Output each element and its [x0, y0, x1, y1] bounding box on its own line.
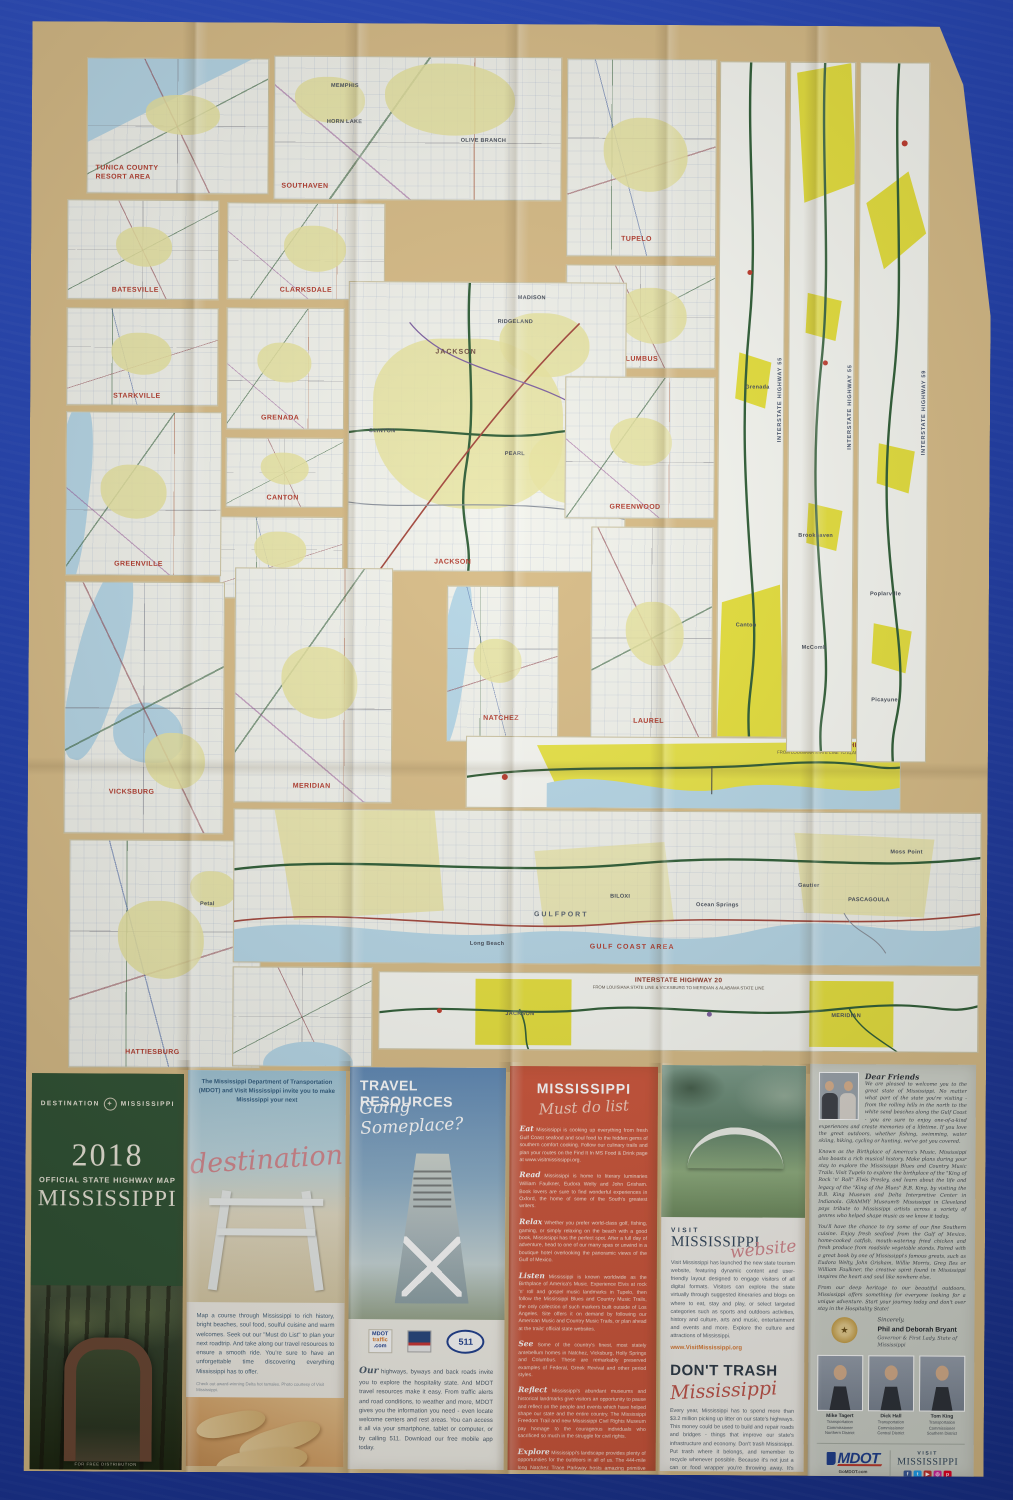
dont-trash-body: Every year, Mississippi has to spend mor… — [660, 1401, 804, 1472]
commissioner-photo — [919, 1356, 965, 1412]
inset-label: VICKSBURG — [109, 789, 155, 798]
travel-body: Our highways, byways and back roads invi… — [348, 1357, 505, 1462]
mississippi-shape-icon — [827, 1452, 836, 1465]
inset-label: CANTON — [266, 495, 298, 504]
inset-natchez: NATCHEZ — [446, 586, 559, 743]
beach-photo: The Mississippi Department of Transporta… — [187, 1070, 346, 1303]
mdottraffic-logo: MDOT traffic .com — [368, 1329, 392, 1352]
inset-label: SOUTHAVEN — [281, 183, 328, 192]
inset-label: CLARKSDALE — [280, 287, 332, 296]
inset-label: NATCHEZ — [483, 715, 519, 724]
inset-label: GREENWOOD — [609, 504, 660, 513]
map-side: TUNICA COUNTY RESORT AREA MEMPHIS HORN L… — [26, 21, 992, 1075]
strip-vertical-label: INTERSTATE HIGHWAY 55 — [847, 364, 854, 449]
gomdot-url: GoMDOT.com — [821, 1469, 886, 1474]
inset-label: GREENVILLE — [114, 561, 163, 570]
inset-grenada: GRENADA — [226, 307, 345, 430]
inset-label: TUPELO — [621, 236, 652, 245]
cover-footnote: FOR FREE DISTRIBUTION — [30, 1461, 182, 1467]
body-lead-word: Our — [359, 1366, 378, 1376]
511-logo: 511 — [447, 1330, 485, 1354]
inset-label: LAUREL — [633, 718, 664, 727]
must-do-item: Listen Mississippi is known worldwide as… — [518, 1271, 646, 1334]
tamales-photo — [186, 1397, 344, 1467]
must-do-item: Read Mississippi is home to literary lum… — [519, 1170, 647, 1211]
inset-label: JACKSON — [434, 559, 471, 568]
highway-map-sheet: TUNICA COUNTY RESORT AREA MEMPHIS HORN L… — [24, 21, 993, 1477]
website-body: Visit Mississippi has launched the new s… — [660, 1253, 805, 1343]
inset-southaven: MEMPHIS HORN LAKE OLIVE BRANCH SOUTHAVEN — [273, 56, 562, 202]
inset-gulf-coast: GULFPORT BILOXI Ocean Springs Gautier PA… — [233, 808, 982, 967]
mdot-app-icon — [407, 1330, 431, 1352]
inset-greenwood: GREENWOOD — [564, 376, 715, 519]
must-do-title: MISSISSIPPI — [520, 1080, 648, 1097]
tamales-caption: Check out award-winning Delta hot tamale… — [186, 1381, 344, 1394]
compass-icon: ✦ — [104, 1098, 117, 1111]
pinterest-icon: p — [944, 1471, 952, 1477]
commissioner-photo — [868, 1356, 914, 1412]
inset-tunica: TUNICA COUNTY RESORT AREA — [86, 57, 269, 194]
destination-intro: The Mississippi Department of Transporta… — [196, 1078, 338, 1106]
inset-label: GRENADA — [261, 414, 299, 423]
destination-script: destination — [187, 1140, 346, 1181]
must-do-item: Reflect Mississippi's abundant museums a… — [518, 1385, 646, 1441]
photo-scene: TUNICA COUNTY RESORT AREA MEMPHIS HORN L… — [0, 0, 1013, 1500]
inset-label: TUNICA COUNTY RESORT AREA — [95, 164, 173, 182]
inset-greenville: GREENVILLE — [65, 411, 222, 576]
strip-vertical-label: INTERSTATE HIGHWAY 55 — [777, 357, 784, 442]
visit-mississippi-logo: MISSISSIPPI — [895, 1457, 961, 1468]
visit-mississippi-url: www.VisitMississippi.org — [660, 1342, 804, 1355]
must-do-script: Must do list — [519, 1096, 648, 1120]
panel-must-do: MISSISSIPPI Must do list Eat Mississippi… — [508, 1066, 658, 1471]
state-seal-icon: ★ — [831, 1317, 857, 1343]
strip-i55-south: Brookhaven McComb INTERSTATE HIGHWAY 55 — [786, 62, 856, 752]
must-do-item: Relax Whether you prefer world-class gol… — [519, 1217, 647, 1266]
panel-destination: The Mississippi Department of Transporta… — [186, 1070, 346, 1467]
inset-label: BATESVILLE — [112, 287, 159, 296]
inset-meridian: MERIDIAN — [234, 567, 393, 803]
map-subtitle: OFFICIAL STATE HIGHWAY MAP — [31, 1175, 183, 1185]
map-year: 2018 — [31, 1136, 183, 1174]
panel-cover: DESTINATION ✦ MISSISSIPPI 2018 OFFICIAL … — [30, 1073, 184, 1470]
must-do-item: See Some of the country's finest, most s… — [518, 1339, 646, 1380]
inset-label: MERIDIAN — [293, 783, 331, 792]
panel-website: VISIT MISSISSIPPI website Visit Mississi… — [660, 1065, 806, 1472]
inset-vicksburg: VICKSBURG — [63, 581, 225, 834]
inset-label: GULF COAST AREA — [590, 944, 675, 953]
strip-i55-north: Grenada Canton INTERSTATE HIGHWAY 55 — [716, 61, 786, 737]
mdot-logo: MDOT — [838, 1450, 880, 1467]
youtube-icon: ▶ — [924, 1471, 932, 1477]
going-someplace-script: Going Someplace? — [359, 1092, 506, 1139]
letter-signers-title: Governor & First Lady, State of Mississi… — [877, 1335, 965, 1350]
inset-laurel: LAUREL — [590, 527, 713, 750]
twitter-icon: t — [914, 1471, 922, 1477]
panel-letter: Dear Friends We are pleased to welcome y… — [808, 1064, 977, 1477]
map-state-title: MISSISSIPPI — [31, 1185, 183, 1212]
inset-tupelo: TUPELO — [566, 58, 717, 257]
instagram-icon: ◎ — [934, 1471, 942, 1477]
inset-canton: CANTON — [225, 437, 343, 508]
inset-starkville: STARKVILLE — [66, 307, 219, 406]
strip-vertical-label: INTERSTATE HIGHWAY 59 — [921, 370, 928, 455]
white-bridge — [687, 1127, 783, 1169]
brick-arch — [64, 1337, 153, 1462]
facebook-icon: f — [904, 1471, 912, 1477]
commissioner-photo — [817, 1355, 863, 1411]
garden-bridge-photo — [661, 1065, 806, 1218]
cover-photo-forest-arch: FOR FREE DISTRIBUTION — [30, 1285, 183, 1470]
commissioner-south: Tom King Transportation CommissionerSout… — [919, 1356, 965, 1436]
strip-i20: INTERSTATE HIGHWAY 20 FROM LOUISIANA STA… — [378, 971, 978, 1053]
historic-water-tower — [395, 1153, 470, 1303]
destination-body: Map a course through Mississippi to rich… — [186, 1302, 344, 1382]
inset-coast-west — [232, 966, 373, 1067]
dont-trash-script: Mississippi — [660, 1376, 805, 1405]
panel-travel-resources: TRAVEL RESOURCES Going Someplace? MDOT t… — [348, 1067, 506, 1470]
must-do-item: Explore Mississippi's landscape provides… — [517, 1447, 645, 1471]
strip-i59: Poplarville Picayune INTERSTATE HIGHWAY … — [856, 62, 930, 762]
governor-couple-photo — [819, 1072, 859, 1120]
letter-signers: Phil and Deborah Bryant — [877, 1325, 965, 1335]
brand-mississippi: MISSISSIPPI — [121, 1101, 175, 1108]
brand-destination: DESTINATION — [41, 1100, 100, 1107]
inset-label: STARKVILLE — [113, 393, 160, 402]
inset-batesville: BATESVILLE — [67, 199, 220, 300]
must-do-item: Eat Mississippi is cooking up everything… — [519, 1124, 647, 1165]
commissioner-north: Mike Tagert Transportation CommissionerN… — [817, 1355, 863, 1435]
inset-label: HATTIESBURG — [125, 1049, 179, 1058]
water-tower-photo: TRAVEL RESOURCES Going Someplace? — [349, 1067, 507, 1320]
commissioner-central: Dick Hall Transportation CommissionerCen… — [868, 1356, 914, 1436]
